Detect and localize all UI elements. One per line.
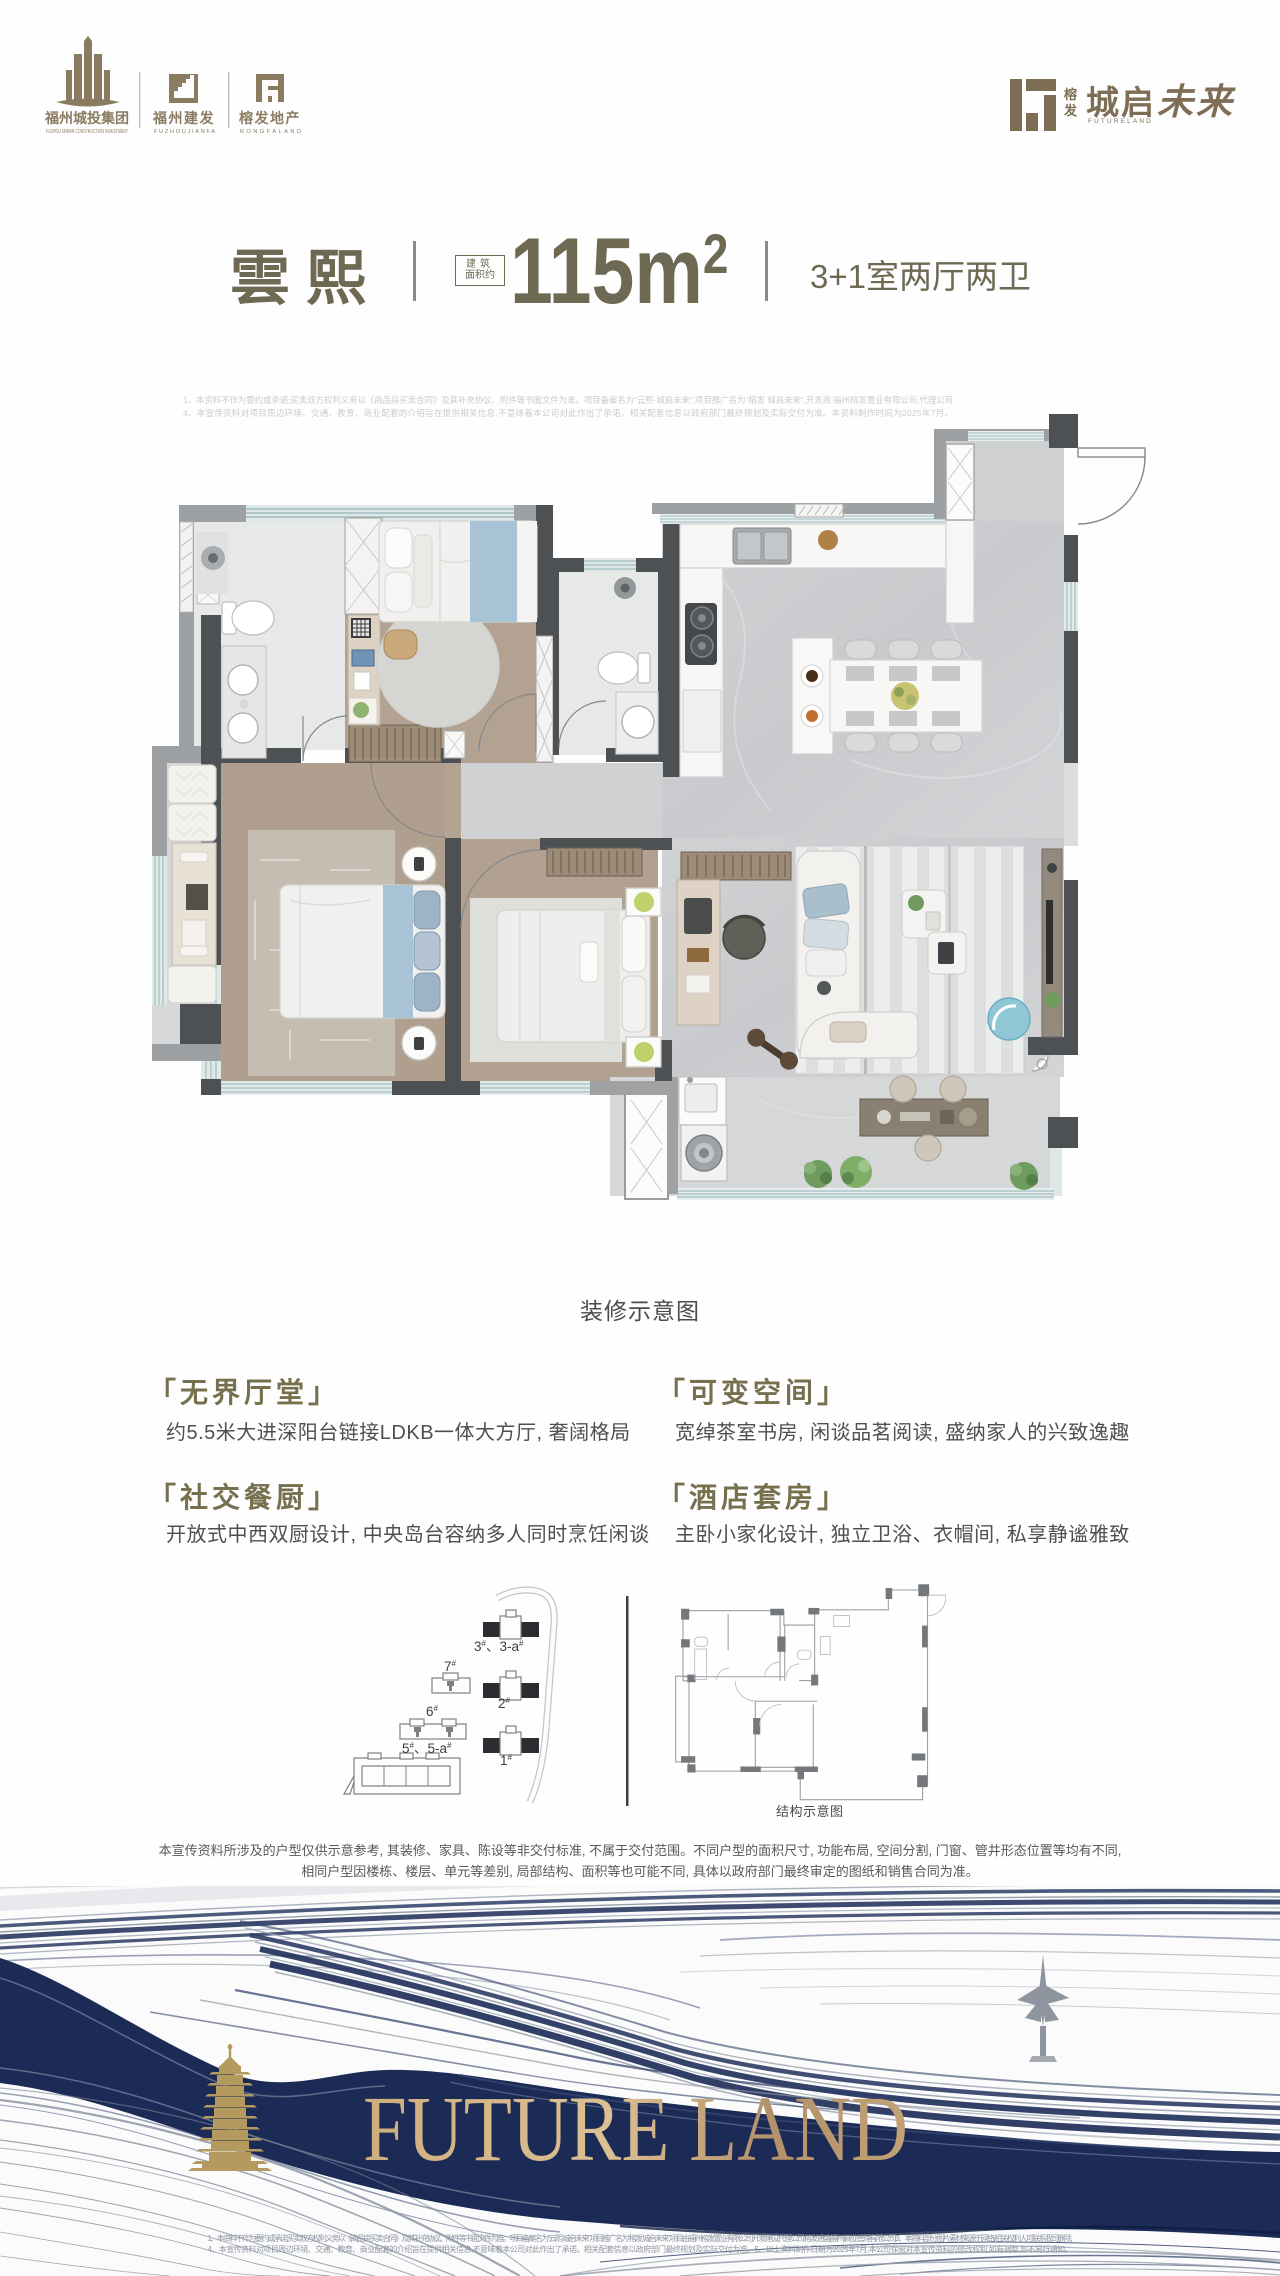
svg-text:未来: 未来 — [1157, 81, 1236, 122]
svg-text:福州城投集团: 福州城投集团 — [44, 110, 129, 126]
svg-text:福州建发: 福州建发 — [152, 110, 215, 126]
svg-text:城启: 城启 — [1086, 84, 1156, 121]
svg-text:1、本资料不作为要约或承诺;买卖双方权利义务以《商品房买卖合: 1、本资料不作为要约或承诺;买卖双方权利义务以《商品房买卖合同》及其补充协议、附… — [183, 395, 953, 405]
svg-text:6#: 6# — [426, 1704, 439, 1719]
svg-text:FUZHOUJIANFA: FUZHOUJIANFA — [154, 129, 215, 135]
svg-text:5#、5-a#: 5#、5-a# — [402, 1741, 452, 1756]
svg-text:榕: 榕 — [1064, 87, 1078, 102]
svg-text:发: 发 — [1063, 103, 1078, 118]
svg-text:2#: 2# — [498, 1696, 511, 1711]
svg-text:7#: 7# — [444, 1659, 457, 1674]
svg-text:RONGFALAND: RONGFALAND — [240, 129, 301, 135]
svg-text:FUZHOU URBAN CONSTRUCTION INVE: FUZHOU URBAN CONSTRUCTION INVESTMENT — [46, 129, 128, 135]
svg-text:榕发地产: 榕发地产 — [239, 110, 301, 126]
svg-text:FUTURE LAND: FUTURE LAND — [363, 2078, 908, 2181]
svg-text:4、本宣传资料对项目周边环境、交通、教育、商业配套的介绍旨在: 4、本宣传资料对项目周边环境、交通、教育、商业配套的介绍旨在提供相关信息,不意味… — [208, 2244, 1073, 2254]
svg-text:1#: 1# — [500, 1753, 513, 1768]
svg-text:3#、3-a#: 3#、3-a# — [474, 1639, 524, 1654]
svg-text:4、本宣传资料对项目周边环境、交通、教育、商业配套的介绍旨在: 4、本宣传资料对项目周边环境、交通、教育、商业配套的介绍旨在提供相关信息,不意味… — [183, 408, 953, 418]
svg-text:1、本资料不作为要约或承诺;买卖双方权利义务以《商品房买卖合: 1、本资料不作为要约或承诺;买卖双方权利义务以《商品房买卖合同》及其补充协议、附… — [207, 2233, 1072, 2243]
svg-text:FUTURELAND: FUTURELAND — [1088, 118, 1153, 125]
